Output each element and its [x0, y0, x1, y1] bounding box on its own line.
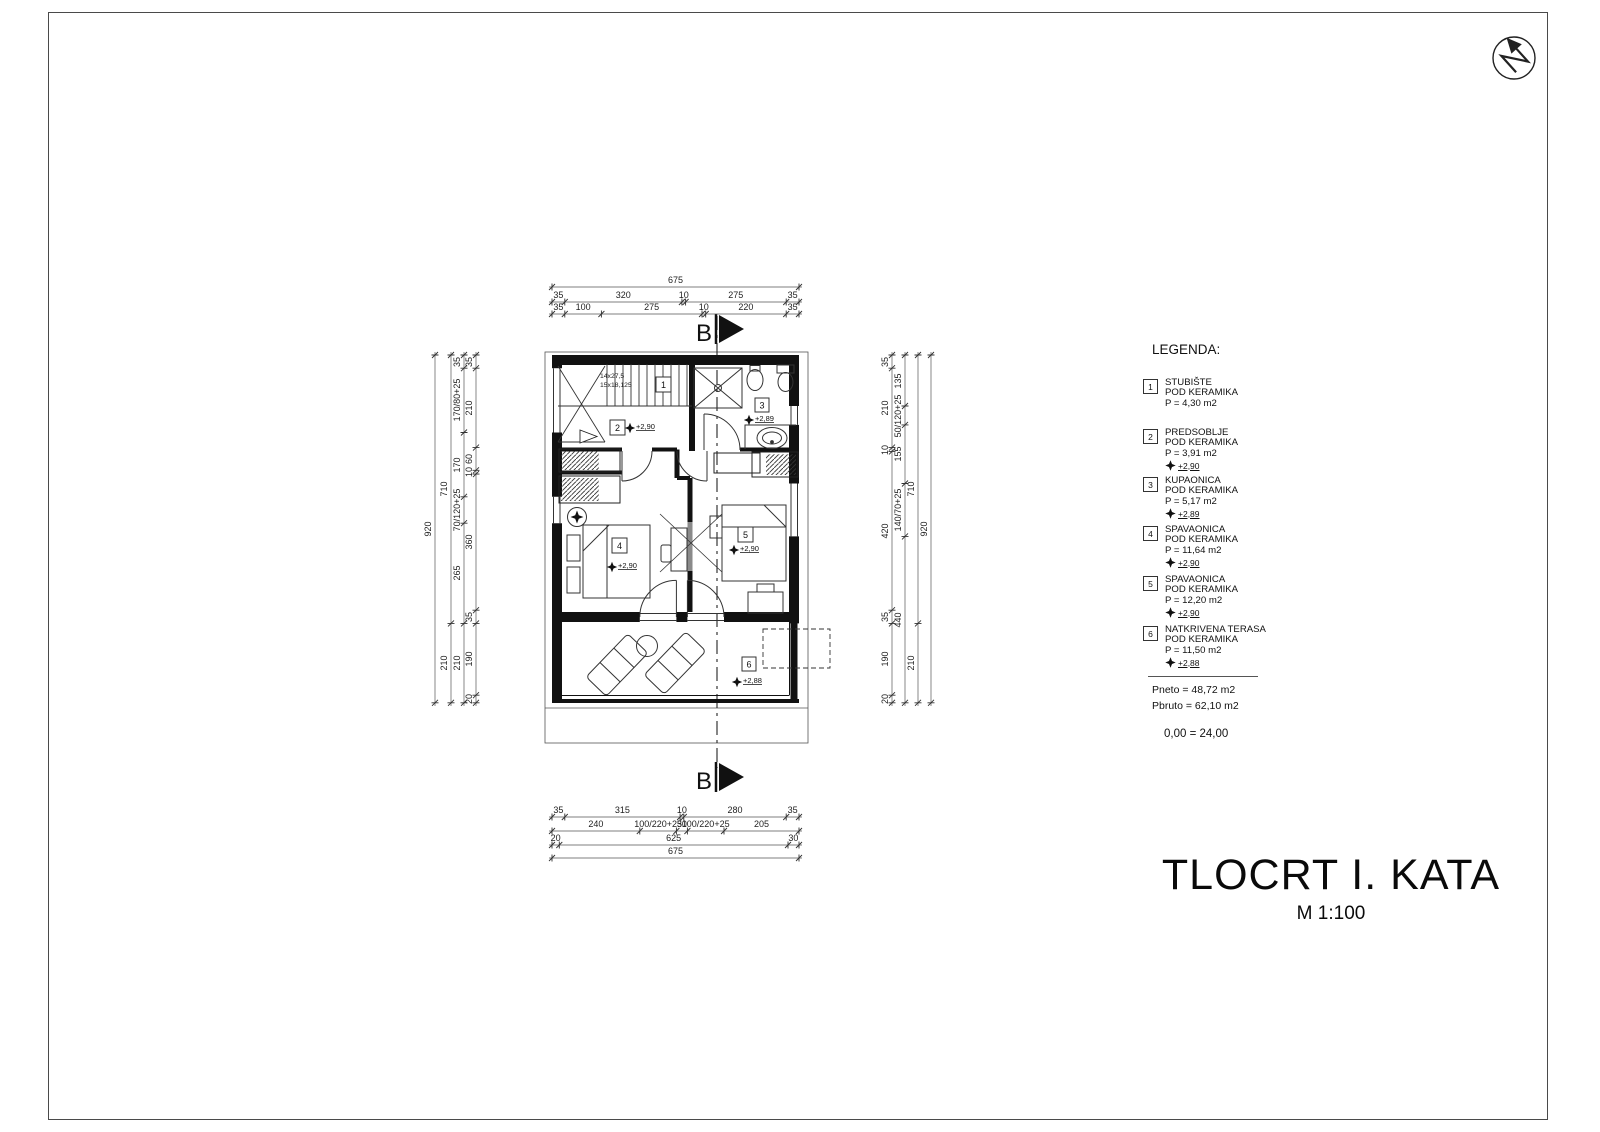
legend-level: +2,88: [1178, 658, 1200, 668]
shelf-room5: [714, 453, 760, 473]
drawing-sheet: B B: [0, 0, 1600, 1132]
stair-note: 14x27,5: [600, 373, 624, 380]
dim-label: 35: [880, 612, 890, 622]
dim-label: 20: [551, 833, 561, 843]
level-marker-icon: [744, 415, 754, 425]
legend-num: 5: [1143, 576, 1158, 591]
legend-level: +2,90: [1178, 608, 1200, 618]
dim-label: 210: [452, 655, 462, 670]
room-label-4: 4 +2,90: [607, 538, 637, 572]
dim-label: 920: [423, 521, 433, 536]
stair-direction-arrow-icon: [580, 430, 597, 443]
dim-label: 440: [893, 612, 903, 627]
level-value: +2,90: [618, 561, 637, 570]
dim-label: 210: [880, 400, 890, 415]
legend-num: 6: [1143, 626, 1158, 641]
legend-heading: LEGENDA:: [1152, 342, 1220, 357]
bed-room5: [710, 505, 786, 613]
level-marker-icon: [625, 423, 635, 433]
dim-label: 10: [464, 467, 474, 477]
room-number: 6: [746, 660, 751, 670]
chair: [661, 545, 671, 562]
bathroom-fixtures: [694, 365, 796, 449]
section-letter: B: [696, 768, 712, 795]
level-value: +2,90: [740, 544, 759, 553]
dim-label: 35: [553, 302, 563, 312]
level-marker-icon: [1165, 508, 1176, 519]
dim-label: 135: [893, 373, 903, 388]
dim-label: 100/220+25: [682, 819, 730, 829]
dim-label: 210: [439, 655, 449, 670]
legend-datum: 0,00 = 24,00: [1164, 728, 1228, 740]
dim-label: 420: [880, 523, 890, 538]
dim-label: 10: [880, 445, 890, 455]
drawing-scale: M 1:100: [1131, 903, 1531, 925]
lounge-chair: [586, 634, 648, 697]
door-bathroom: [704, 414, 740, 450]
door-terrace-left: [640, 580, 677, 617]
room-number: 2: [615, 423, 620, 433]
section-arrow-icon: [719, 763, 744, 791]
dim-label: 220: [738, 302, 753, 312]
level-value: +2,89: [755, 414, 774, 423]
round-table: [637, 636, 658, 657]
room-number: 1: [661, 380, 666, 390]
shower-icon: [694, 368, 742, 408]
dim-label: 35: [788, 805, 798, 815]
door-room4: [622, 451, 652, 481]
level-marker-icon: [1165, 460, 1176, 471]
level-marker-icon: [729, 545, 739, 555]
dim-label: 35: [880, 357, 890, 367]
dim-label: 170: [452, 457, 462, 472]
desk: [660, 514, 722, 572]
legend-item-5: 5 SPAVAONICA POD KERAMIKA P = 12,20 m2 +…: [1143, 575, 1363, 618]
dim-label: 280: [727, 805, 742, 815]
dim-label: 140/70+25: [893, 489, 903, 532]
bed-room4: [567, 525, 650, 598]
page-title: TLOCRT I. KATA: [1131, 851, 1531, 900]
dim-label: 625: [666, 833, 681, 843]
legend-separator: [1148, 676, 1258, 677]
legend-area: P = 12,20 m2: [1165, 596, 1238, 606]
legend-area: P = 4,30 m2: [1165, 399, 1238, 409]
dim-label: 35: [788, 302, 798, 312]
room-number: 5: [743, 530, 748, 540]
dim-label: 155: [893, 446, 903, 461]
dim-label: 35: [464, 612, 474, 622]
dim-label: 60: [464, 454, 474, 464]
dim-label: 210: [906, 655, 916, 670]
washbasin-icon: [745, 425, 796, 449]
level-marker-icon: [1165, 607, 1176, 618]
dresser: [748, 592, 783, 613]
dim-label: 170/80+25: [452, 379, 462, 422]
level-marker-icon: [732, 677, 742, 687]
legend-num: 4: [1143, 526, 1158, 541]
window-right-2: [791, 484, 798, 537]
room-number: 3: [759, 401, 764, 411]
legend-area: P = 3,91 m2: [1165, 449, 1238, 459]
dim-label: 710: [439, 481, 449, 496]
legend-item-4: 4 SPAVAONICA POD KERAMIKA P = 11,64 m2 +…: [1143, 525, 1363, 568]
room-label-3: 3 +2,89: [744, 398, 774, 425]
light-fixture-icon: [568, 508, 587, 527]
dim-label: 210: [464, 400, 474, 415]
room-label-1: 1: [656, 377, 671, 392]
level-value: +2,88: [743, 676, 762, 685]
dim-label: 35: [788, 290, 798, 300]
legend-pneto: Pneto = 48,72 m2: [1152, 684, 1235, 696]
level-marker-icon: [607, 562, 617, 572]
legend-num: 2: [1143, 429, 1158, 444]
legend-num: 3: [1143, 477, 1158, 492]
dim-label: 50/120+25: [893, 395, 903, 438]
dim-label: 675: [668, 846, 683, 856]
dim-label: 320: [616, 290, 631, 300]
section-marker-top: B: [696, 314, 744, 347]
lounge-chair: [644, 632, 706, 695]
dim-label: 920: [919, 521, 929, 536]
legend-level: +2,89: [1178, 509, 1200, 519]
level-marker-icon: [1165, 657, 1176, 668]
dim-label: 265: [452, 565, 462, 580]
legend-num: 1: [1143, 379, 1158, 394]
legend-item-3: 3 KUPAONICA POD KERAMIKA P = 5,17 m2 +2,…: [1143, 476, 1363, 519]
legend-area: P = 5,17 m2: [1165, 497, 1238, 507]
dim-label: 35: [553, 290, 563, 300]
dim-label: 675: [668, 275, 683, 285]
dresser-item: [757, 584, 774, 592]
door-terrace-right: [687, 580, 724, 617]
level-value: +2,90: [636, 422, 655, 431]
dim-label: 10: [679, 290, 689, 300]
legend-item-2: 2 PREDSOBLJE POD KERAMIKA P = 3,91 m2 +2…: [1143, 428, 1363, 471]
legend-area: P = 11,50 m2: [1165, 646, 1266, 656]
legend-level: +2,90: [1178, 558, 1200, 568]
dim-label: 35: [464, 357, 474, 367]
level-marker-icon: [1165, 557, 1176, 568]
legend-item-6: 6 NATKRIVENA TERASA POD KERAMIKA P = 11,…: [1143, 625, 1363, 668]
section-arrow-icon: [719, 315, 744, 343]
dim-label: 30: [788, 833, 798, 843]
window-right-1: [791, 406, 798, 425]
room-number: 4: [617, 541, 622, 551]
dim-label: 70/120+25: [452, 489, 462, 532]
dim-label: 100: [576, 302, 591, 312]
dim-label: 205: [754, 819, 769, 829]
dim-label: 20: [880, 694, 890, 704]
room-label-2: 2 +2,90: [610, 420, 655, 435]
legend-level: +2,90: [1178, 461, 1200, 471]
dim-label: 20: [464, 694, 474, 704]
room-label-6: 6 +2,88: [732, 657, 762, 687]
room-label-5: 5 +2,90: [729, 527, 759, 555]
legend-area: P = 11,64 m2: [1165, 546, 1238, 556]
dim-label: 100/220+25: [634, 819, 682, 829]
dim-label: 275: [644, 302, 659, 312]
legend-pbruto: Pbruto = 62,10 m2: [1152, 700, 1239, 712]
dim-label: 315: [615, 805, 630, 815]
nightstand: [567, 535, 580, 561]
section-letter: B: [696, 320, 712, 347]
dim-label: 190: [880, 651, 890, 666]
dim-label: 360: [464, 534, 474, 549]
nightstand: [567, 567, 580, 593]
dim-label: 35: [452, 357, 462, 367]
north-arrow-icon: [1493, 33, 1535, 79]
dim-label: 35: [553, 805, 563, 815]
section-marker-bottom: B: [696, 762, 744, 795]
window-left-1: [554, 368, 561, 432]
legend-item-1: 1 STUBIŠTE POD KERAMIKA P = 4,30 m2: [1143, 378, 1363, 409]
bidet-icon: [747, 366, 763, 391]
stair-note: 15x18,125: [600, 382, 632, 389]
dim-label: 10: [677, 805, 687, 815]
dim-label: 240: [588, 819, 603, 829]
dim-label: 710: [906, 481, 916, 496]
terrace-parapet: [552, 622, 799, 703]
dim-label: 190: [464, 651, 474, 666]
dim-label: 275: [728, 290, 743, 300]
dim-label: 10: [699, 302, 709, 312]
